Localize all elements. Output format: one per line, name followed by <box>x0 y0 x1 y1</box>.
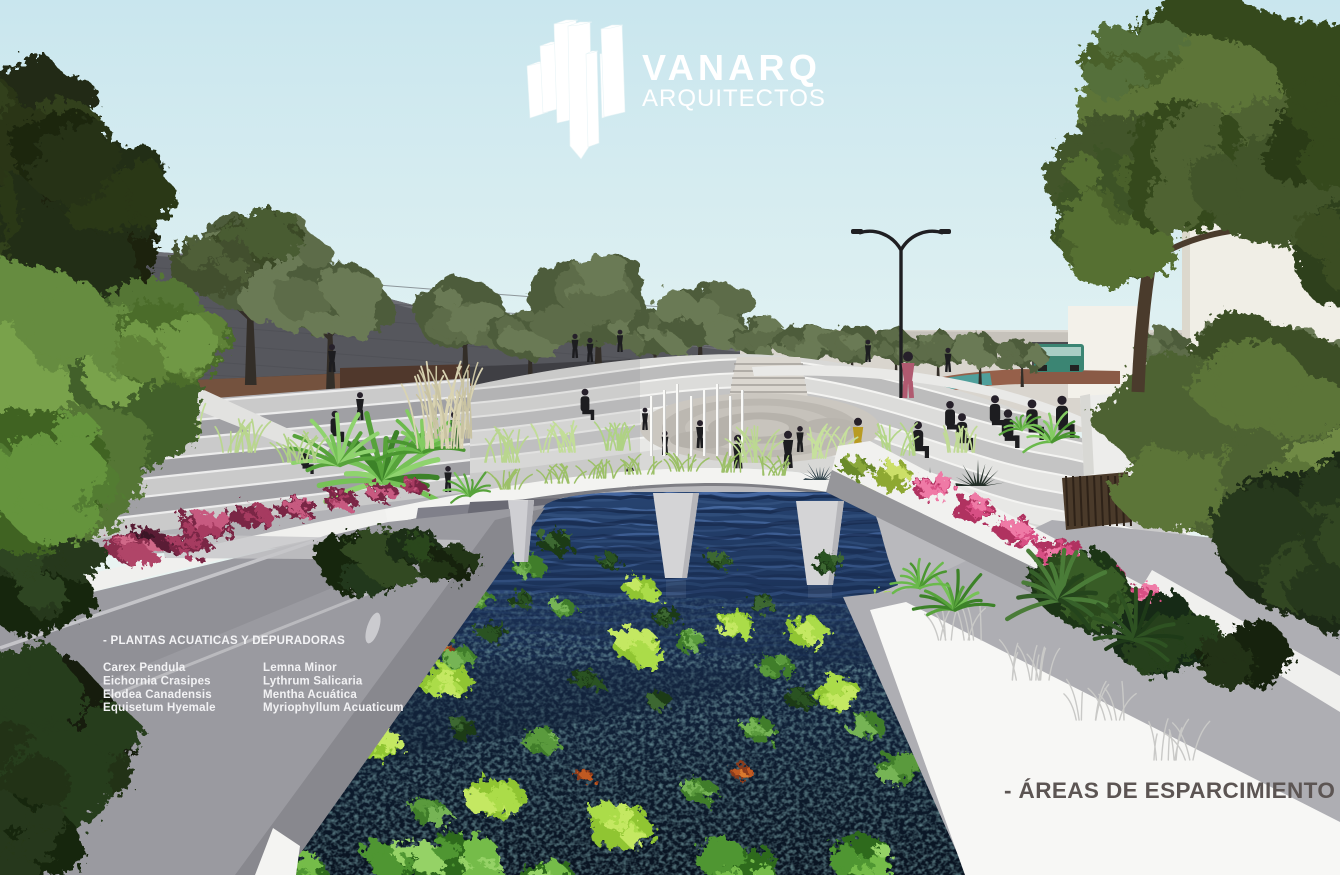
svg-text:Lemna Minor: Lemna Minor <box>263 662 337 674</box>
svg-text:ARQUITECTOS: ARQUITECTOS <box>642 85 826 112</box>
svg-text:Eichornia Crasipes: Eichornia Crasipes <box>103 675 211 687</box>
svg-text:- PLANTAS ACUATICAS Y DEPURADO: - PLANTAS ACUATICAS Y DEPURADORAS <box>103 635 345 647</box>
svg-text:Equisetum Hyemale: Equisetum Hyemale <box>103 702 216 714</box>
svg-text:VANARQ: VANARQ <box>642 47 821 88</box>
svg-text:Myriophyllum Acuaticum: Myriophyllum Acuaticum <box>263 702 404 714</box>
svg-text:- ÁREAS DE ESPARCIMIENTO: - ÁREAS DE ESPARCIMIENTO <box>1004 778 1335 803</box>
svg-text:Elodea Canadensis: Elodea Canadensis <box>103 689 212 701</box>
svg-text:Mentha Acuática: Mentha Acuática <box>263 689 357 701</box>
svg-text:Carex Pendula: Carex Pendula <box>103 662 186 674</box>
svg-text:Lythrum Salicaria: Lythrum Salicaria <box>263 675 363 687</box>
